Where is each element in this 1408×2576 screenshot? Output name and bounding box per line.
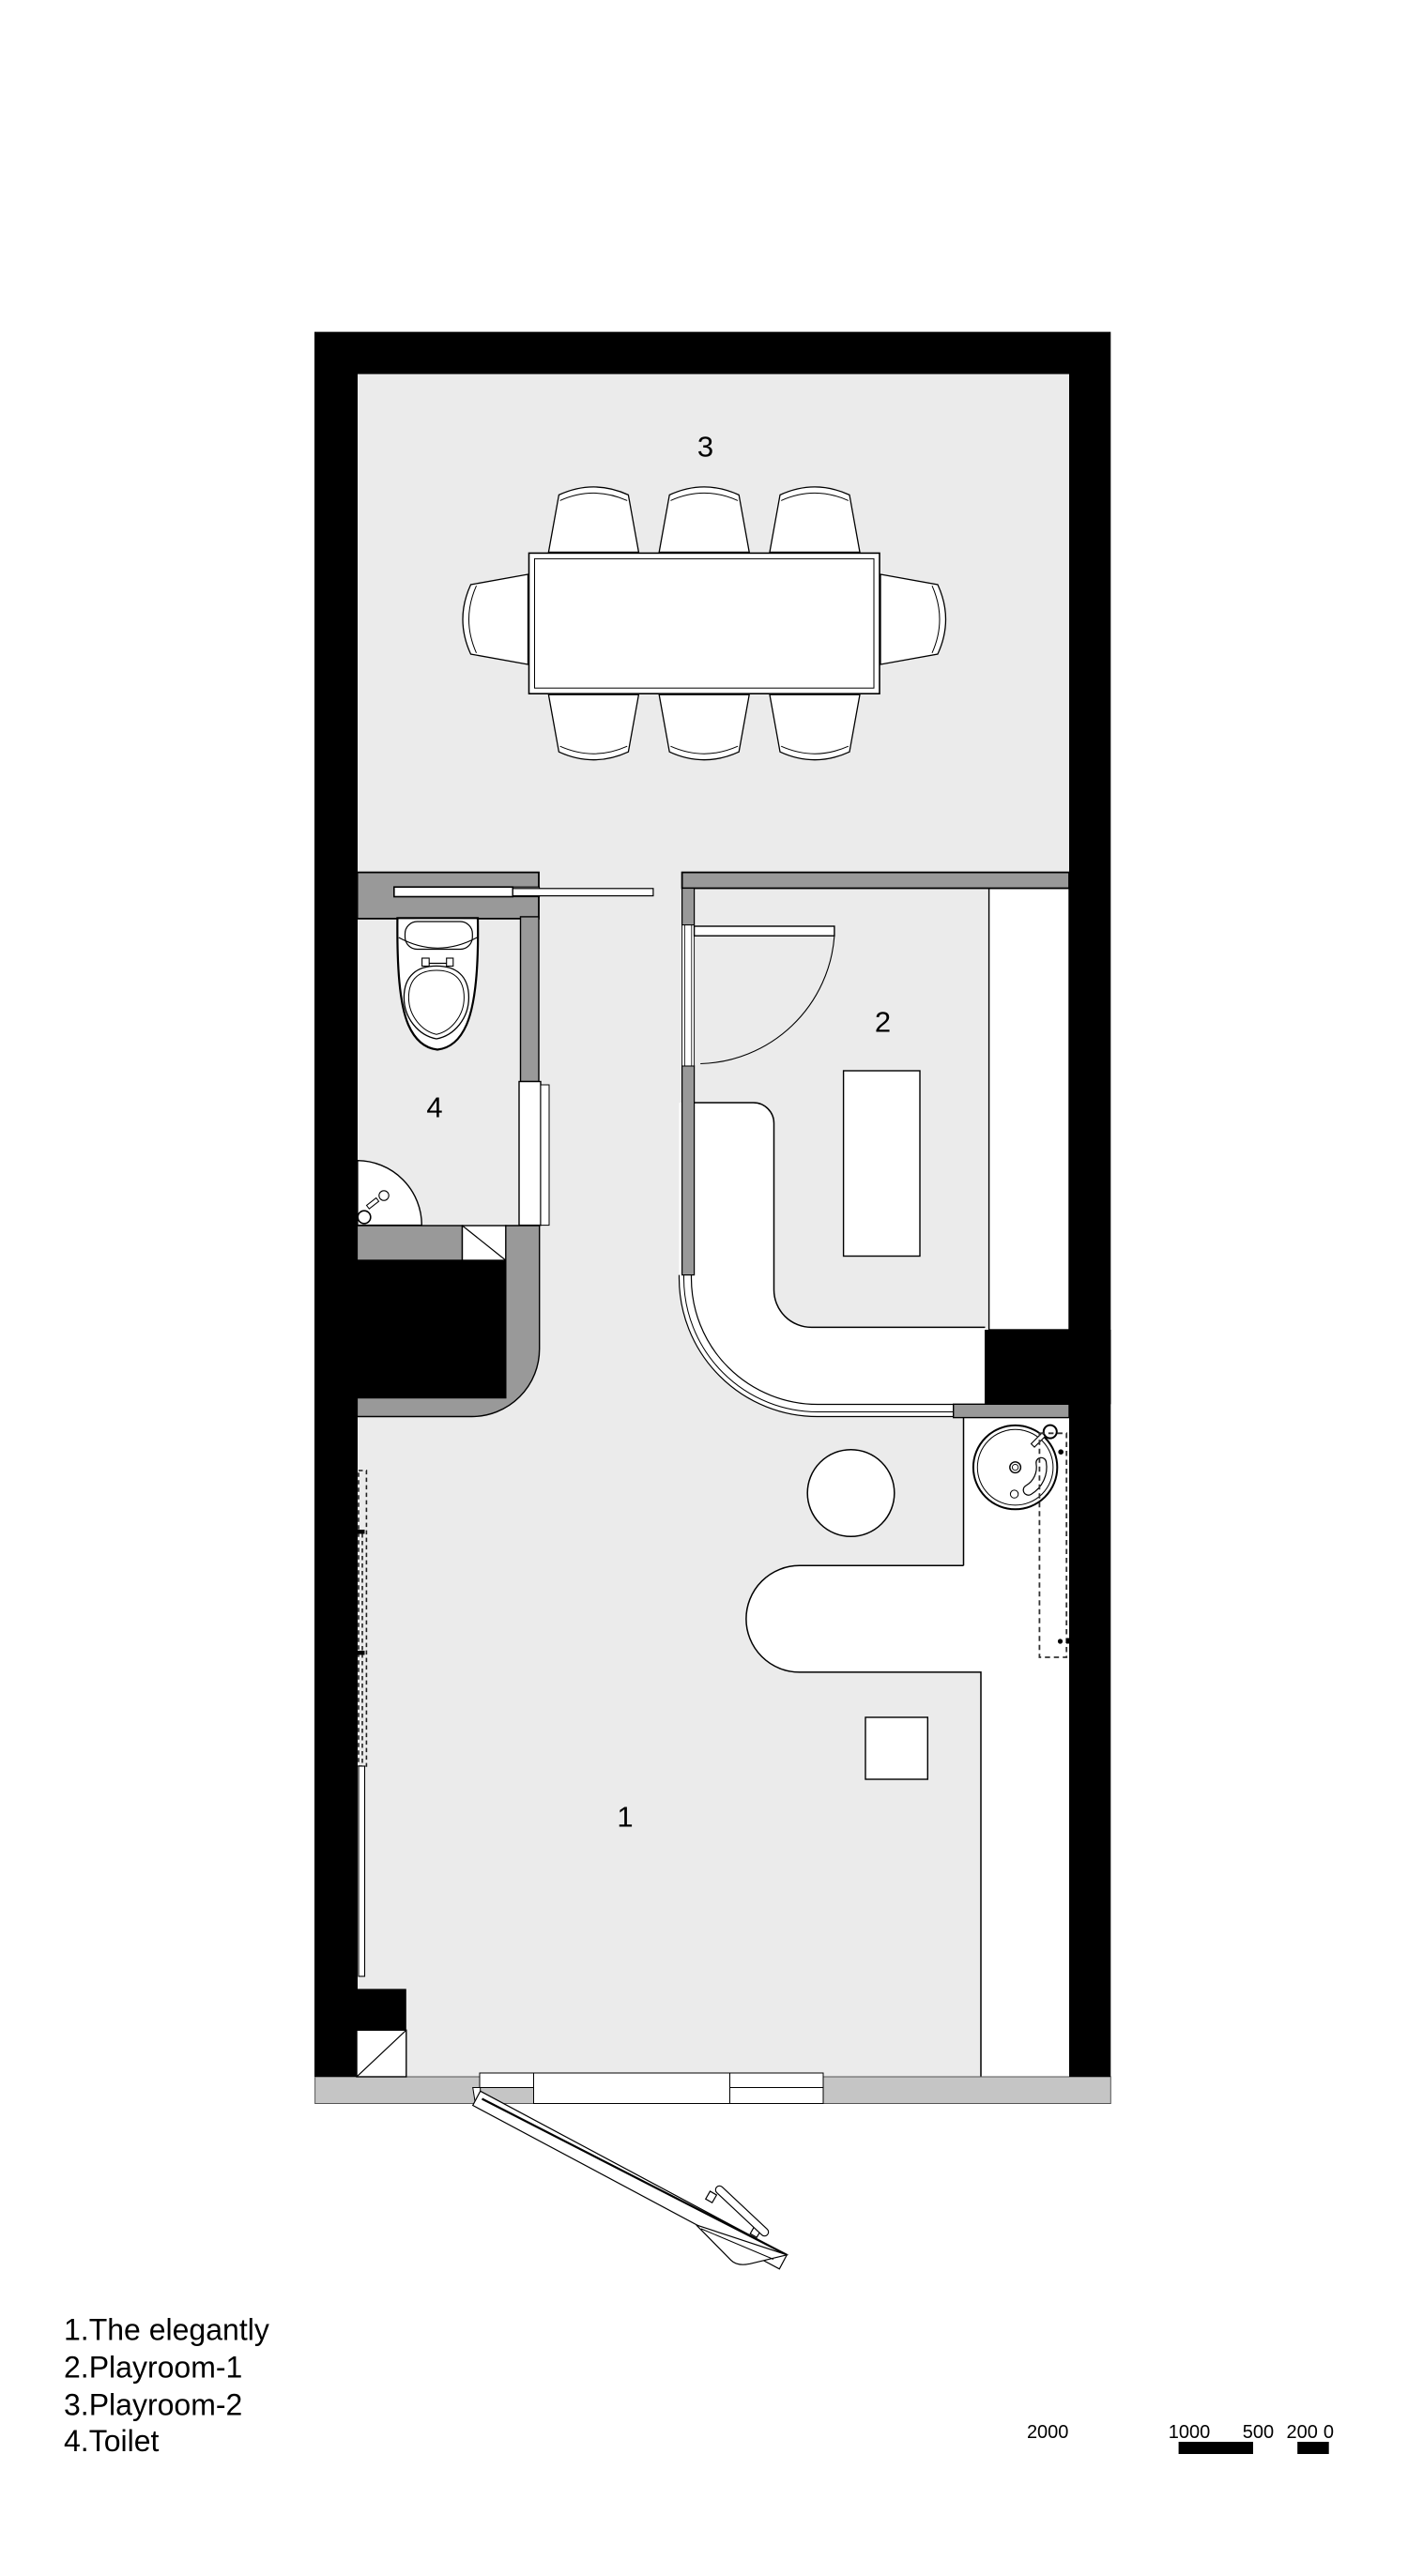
svg-text:4.Toilet: 4.Toilet xyxy=(64,2424,160,2458)
svg-text:1.The elegantly: 1.The elegantly xyxy=(64,2313,269,2347)
svg-text:500: 500 xyxy=(1243,2422,1274,2443)
svg-text:2.Playroom-1: 2.Playroom-1 xyxy=(64,2351,242,2385)
svg-text:2000: 2000 xyxy=(1027,2422,1069,2443)
svg-text:3: 3 xyxy=(697,431,713,464)
svg-text:3.Playroom-2: 3.Playroom-2 xyxy=(64,2387,242,2421)
svg-text:0: 0 xyxy=(1324,2422,1334,2443)
svg-text:200: 200 xyxy=(1287,2422,1318,2443)
svg-text:4: 4 xyxy=(426,1090,442,1123)
svg-text:2: 2 xyxy=(875,1005,891,1038)
svg-text:1000: 1000 xyxy=(1169,2422,1211,2443)
svg-text:1: 1 xyxy=(617,1800,633,1833)
